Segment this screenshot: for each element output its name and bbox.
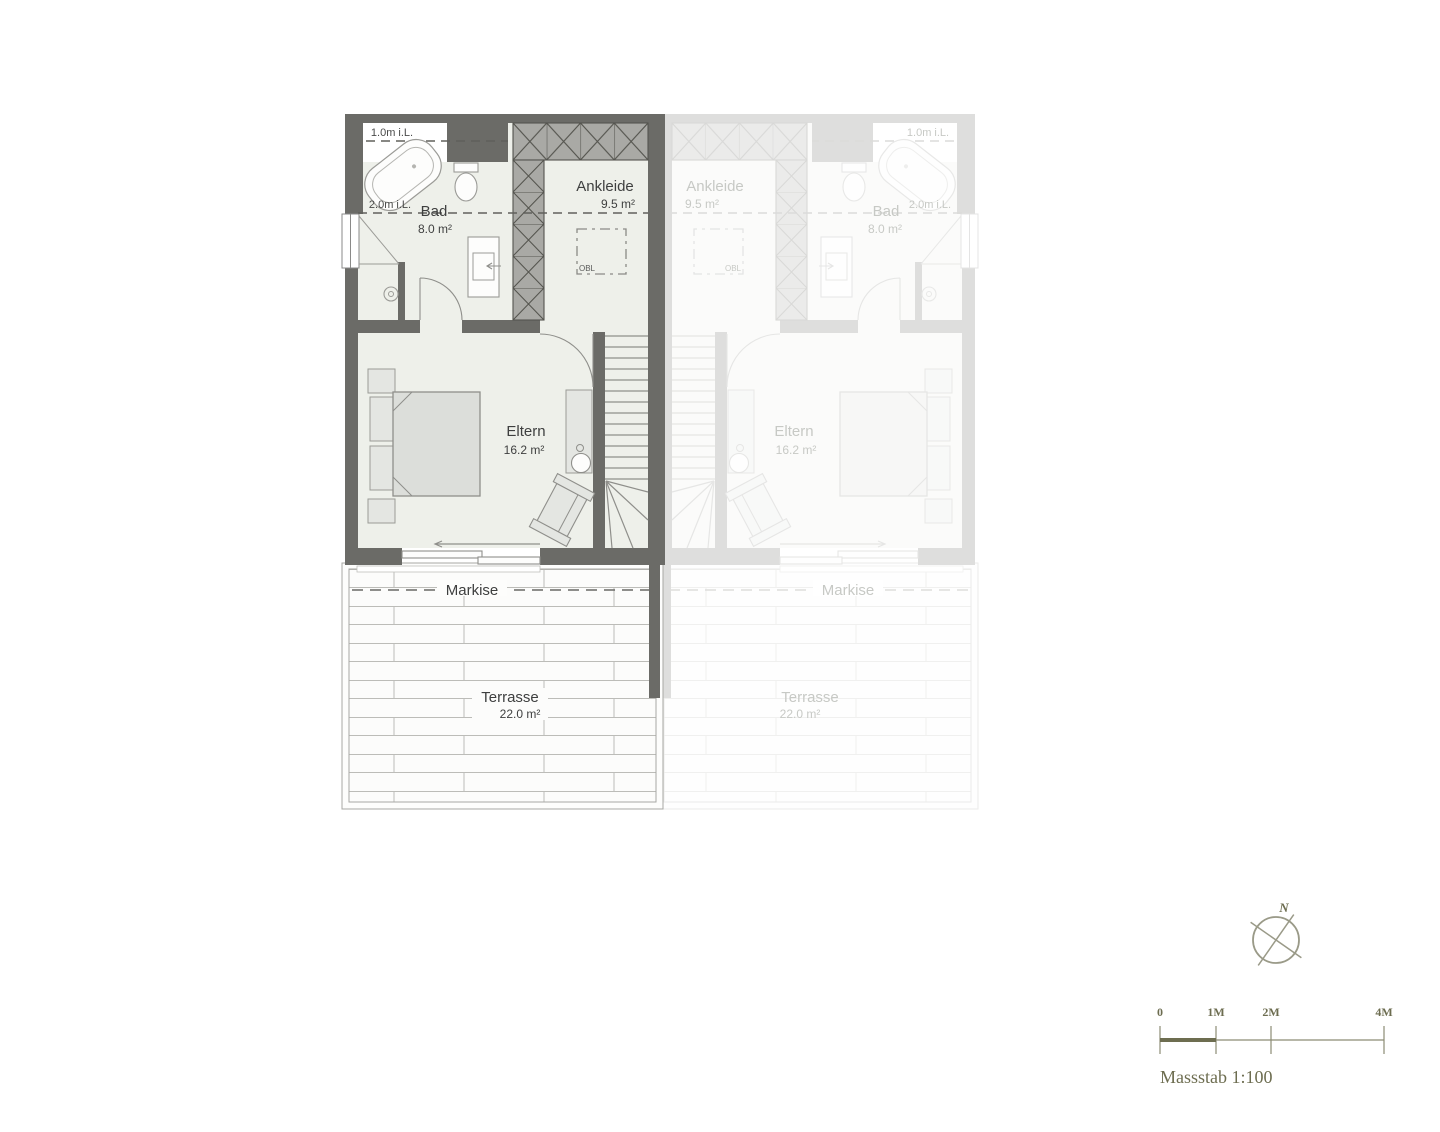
clearance-1m-label: 1.0m i.L. [371,127,413,139]
scale-bar: 0 1M 2M 4M Massstab 1:100 [1157,1005,1393,1087]
neighbor-label-bad-area: 8.0 m² [868,222,902,236]
compass-north-label: N [1278,900,1289,915]
label-bad: Bad [421,203,448,220]
scale-tick-2m: 2M [1262,1005,1279,1019]
scale-tick-4m: 4M [1375,1005,1392,1019]
neighbor-label-terrasse: Terrasse [781,689,839,706]
label-eltern-area: 16.2 m² [504,443,545,457]
compass: N [1233,897,1319,983]
neighbor-label-ankleide: Ankleide [686,178,744,195]
scale-tick-1m: 1M [1207,1005,1224,1019]
label-markise: Markise [446,582,499,599]
label-bad-area: 8.0 m² [418,222,452,236]
neighbor-label-terrasse-area: 22.0 m² [780,707,821,721]
clearance-2m-label: 2.0m i.L. [369,199,411,211]
neighbor-clearance-2m-label: 2.0m i.L. [909,199,951,211]
neighbor-label-markise: Markise [822,582,875,599]
floorplan-drawing: 1.0m i.L. 2.0m i.L. Bad 8.0 m² Ankleide … [0,0,1440,1132]
scale-caption: Massstab 1:100 [1160,1067,1273,1087]
label-eltern: Eltern [506,423,545,440]
neighbor-label-eltern-area: 16.2 m² [776,443,817,457]
label-ankleide-area: 9.5 m² [601,197,635,211]
floorplan-page: 1.0m i.L. 2.0m i.L. Bad 8.0 m² Ankleide … [0,0,1440,1132]
neighbor-label-eltern: Eltern [774,423,813,440]
label-terrasse-area: 22.0 m² [500,707,541,721]
label-terrasse: Terrasse [481,689,539,706]
neighbor-label-ankleide-area: 9.5 m² [685,197,719,211]
scale-tick-0: 0 [1157,1005,1163,1019]
neighbor-label-bad: Bad [873,203,900,220]
label-ankleide: Ankleide [576,178,634,195]
neighbor-label-skylight: OBL [725,264,742,273]
label-skylight: OBL [579,264,596,273]
compass-cross [1233,897,1319,983]
neighbor-clearance-1m-label: 1.0m i.L. [907,127,949,139]
